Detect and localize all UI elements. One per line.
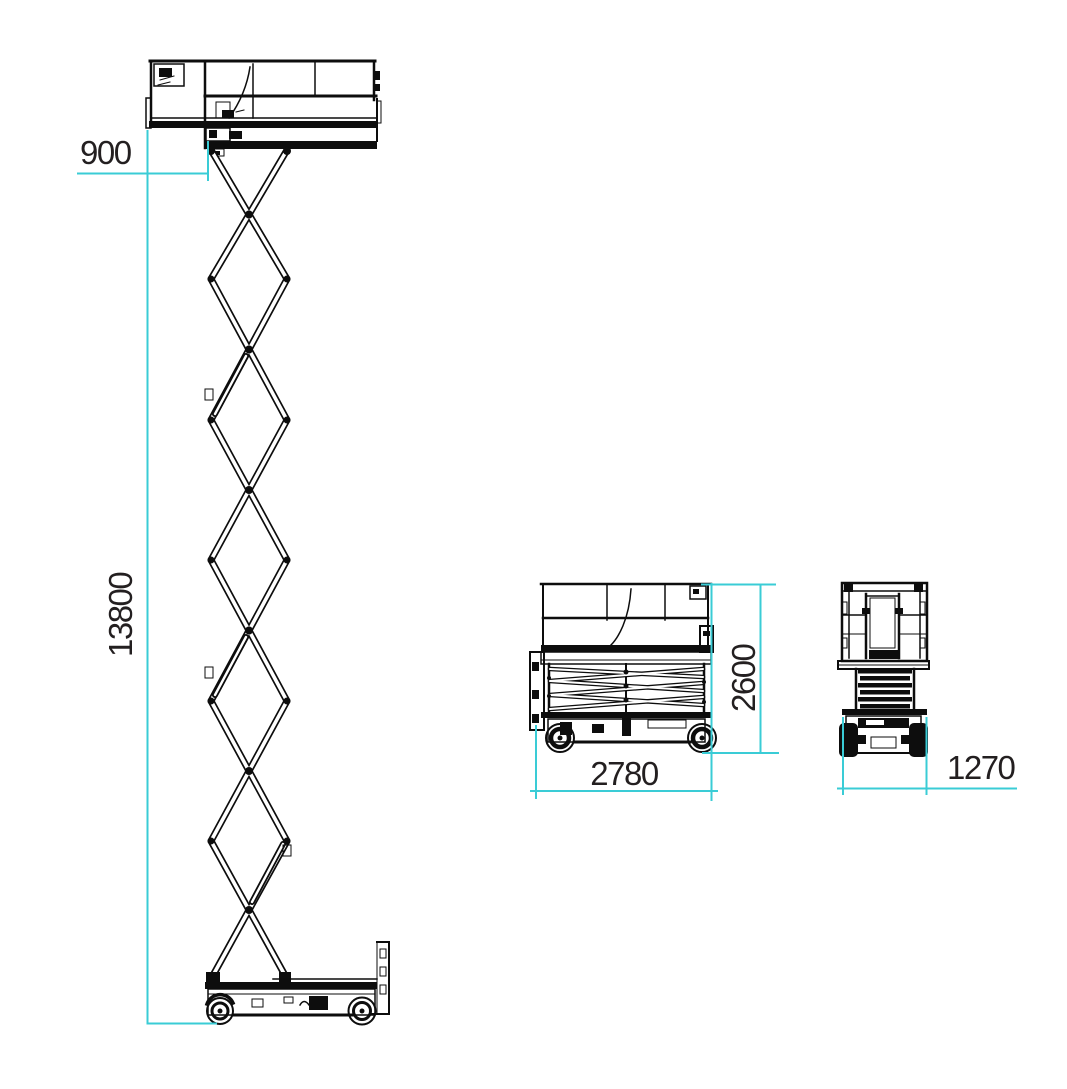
rear-wheel-stowed: [546, 724, 574, 752]
dim-label-extended-height: 13800: [102, 572, 139, 657]
chassis-front: [839, 709, 928, 757]
scissor-stack-extended: [205, 147, 291, 981]
view-extended-side: [146, 61, 389, 1025]
platform-floor-unit: [216, 102, 244, 118]
scissor-lift-dimension-drawing: 900 13800 2780 2600 1270: [0, 0, 1067, 1089]
scissor-stack-folded: [547, 664, 706, 714]
dim-label-platform-extension: 900: [80, 134, 132, 171]
drawing-canvas: 900 13800 2780 2600 1270: [0, 0, 1067, 1089]
platform-raised: [146, 61, 381, 156]
guardrails-front: [842, 583, 927, 661]
battery-box: [309, 996, 328, 1010]
dim-label-overall-width: 1270: [947, 749, 1016, 786]
platform-console: [154, 64, 184, 86]
view-stowed-front: [838, 583, 929, 757]
dimension-line-extended-height: [148, 131, 217, 1024]
rear-wheel: [207, 995, 233, 1024]
guardrails-stowed: [541, 584, 713, 652]
extension-deck: [149, 121, 377, 128]
view-stowed-side: [530, 584, 716, 752]
dim-label-stowed-height: 2600: [725, 643, 762, 712]
front-wheel: [349, 998, 376, 1025]
dim-label-stowed-length: 2780: [590, 755, 659, 792]
chassis-stowed-side: [541, 712, 716, 752]
scissor-stack-front: [856, 669, 914, 709]
main-deck: [206, 141, 377, 149]
chassis-extended: [205, 942, 389, 1025]
